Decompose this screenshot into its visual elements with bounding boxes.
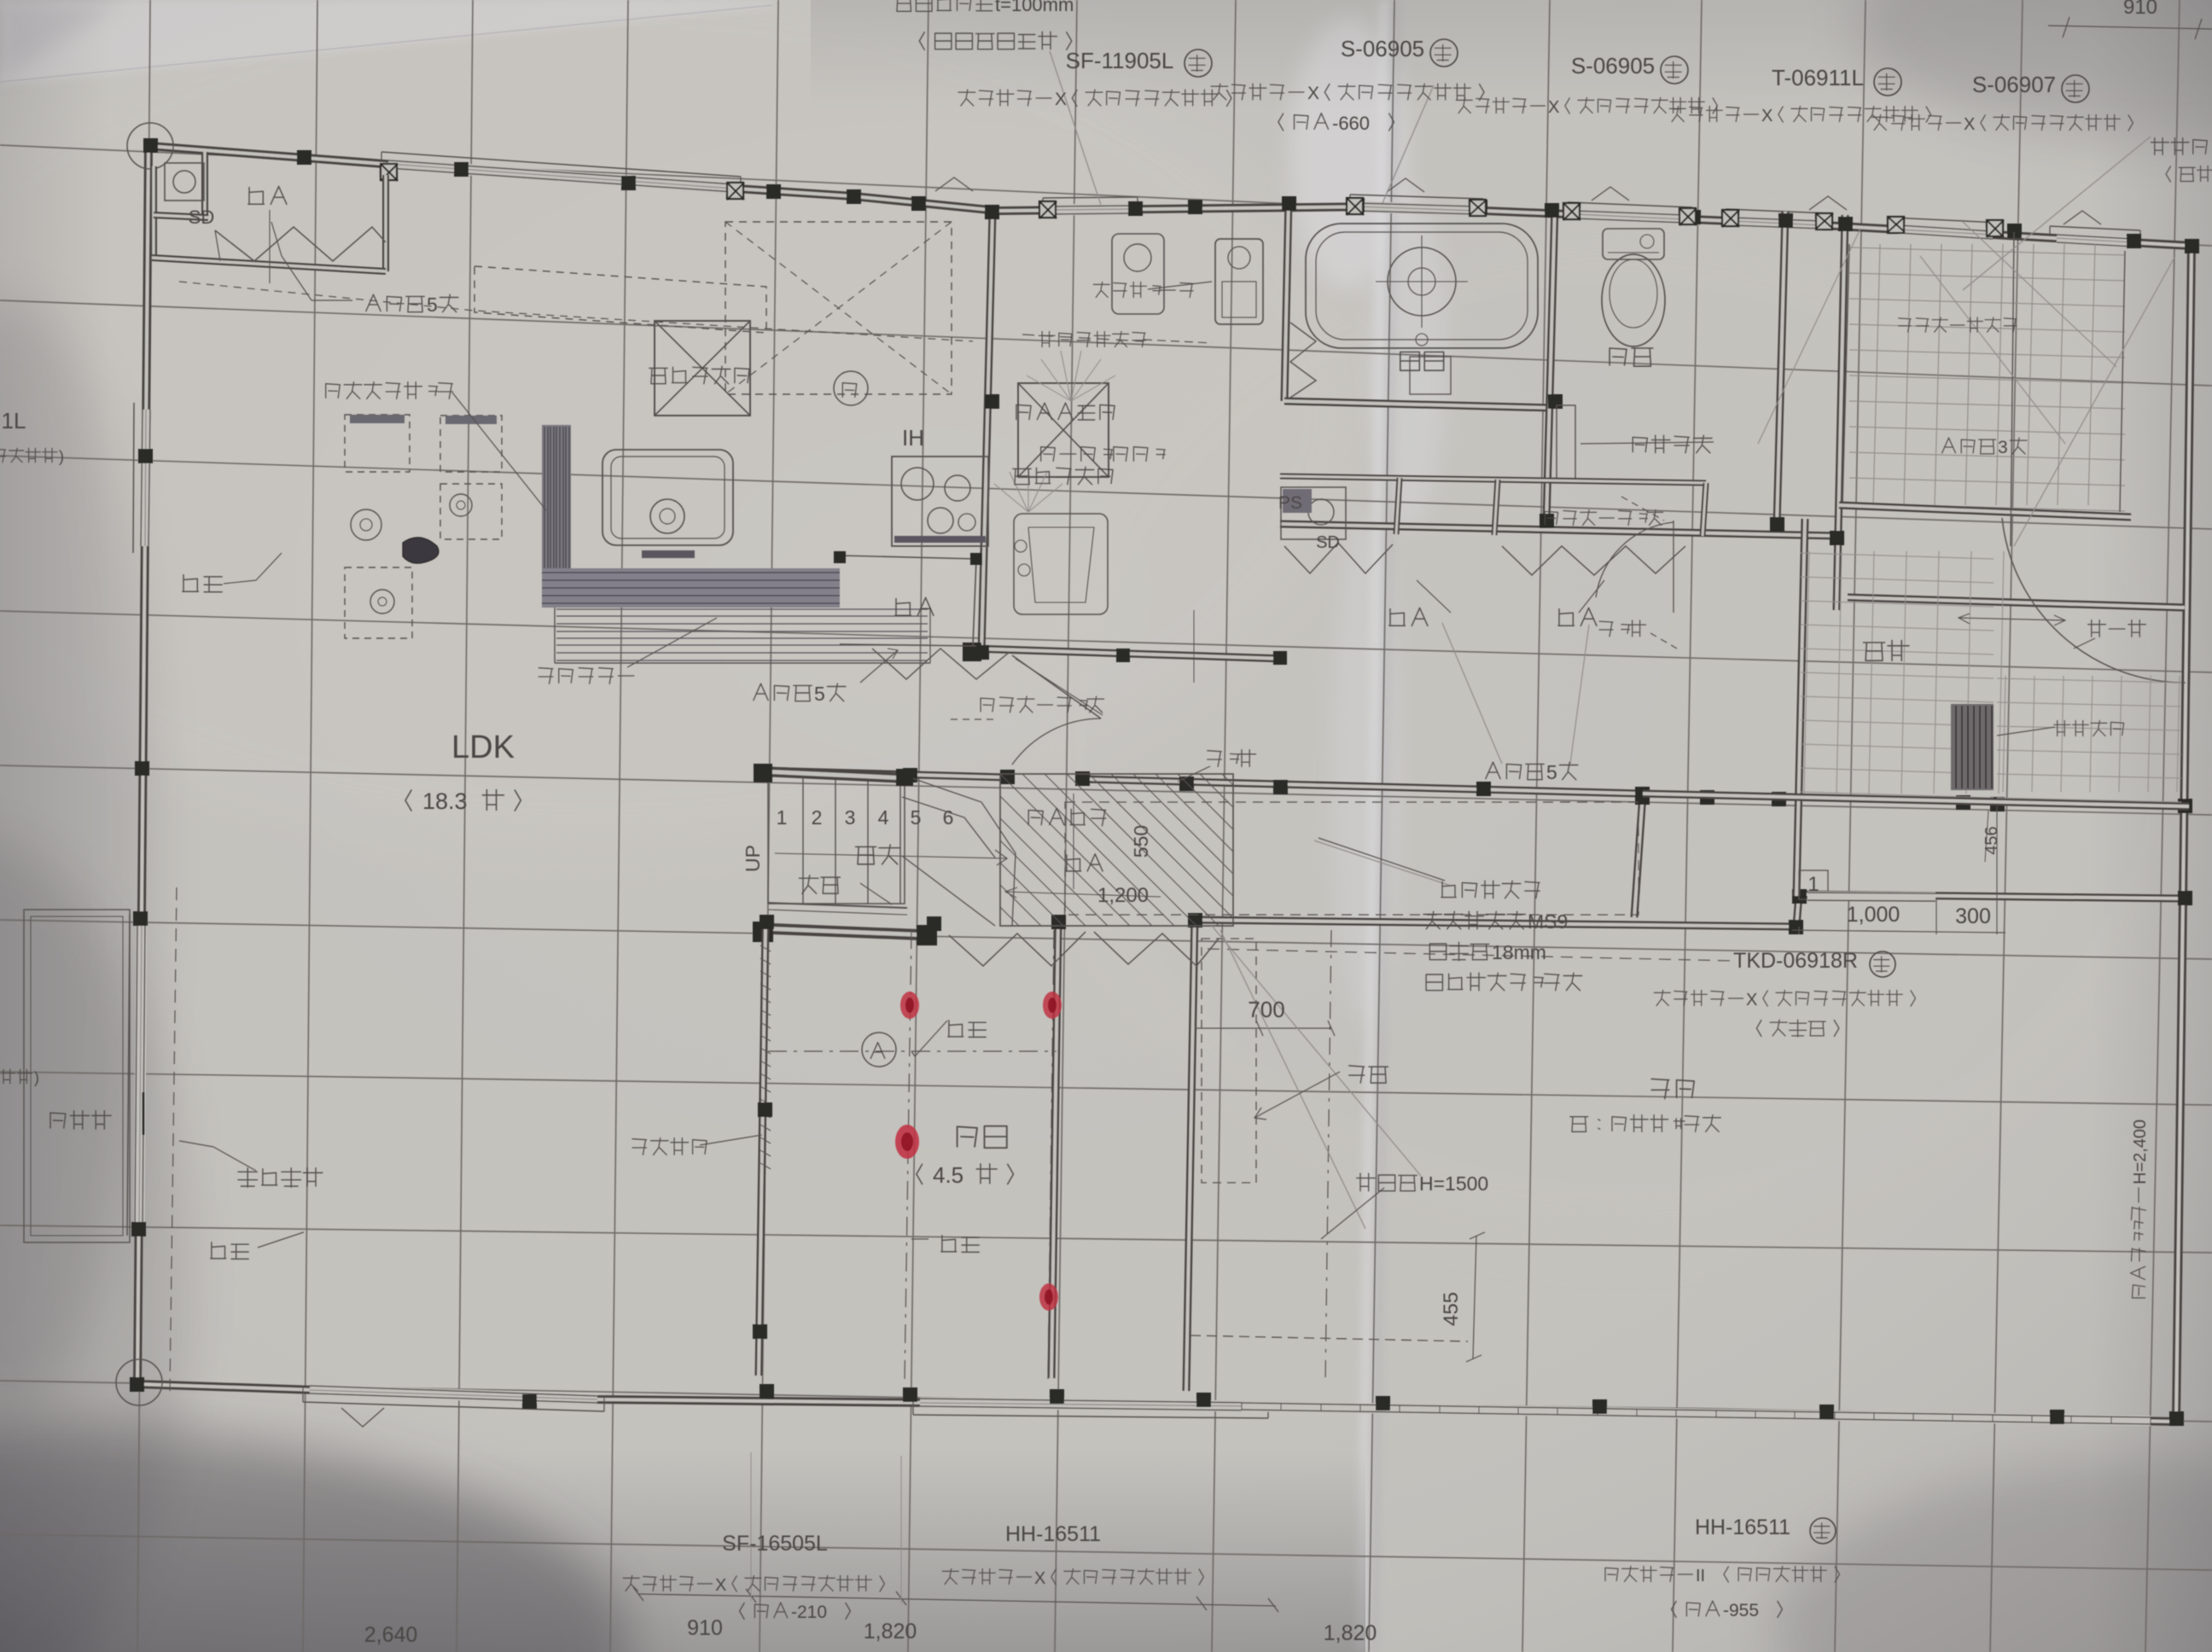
svg-text:HH-16511: HH-16511 xyxy=(1695,1515,1790,1539)
svg-text:700: 700 xyxy=(1248,997,1284,1022)
svg-text:X: X xyxy=(715,1576,726,1595)
svg-text:t=100mm: t=100mm xyxy=(995,0,1074,15)
svg-text:1,000: 1,000 xyxy=(1847,903,1901,927)
svg-text:5: 5 xyxy=(427,294,438,316)
svg-text:910: 910 xyxy=(687,1616,723,1640)
svg-text:IH: IH xyxy=(902,425,924,451)
svg-text:H=1500: H=1500 xyxy=(1419,1172,1488,1195)
svg-text:1,200: 1,200 xyxy=(1097,884,1149,907)
svg-text:SF-11905L: SF-11905L xyxy=(1066,48,1174,73)
svg-text:H=2,400: H=2,400 xyxy=(2131,1120,2150,1184)
svg-text:-955: -955 xyxy=(1723,1601,1759,1620)
svg-text:): ) xyxy=(34,1069,39,1086)
svg-text:2: 2 xyxy=(812,806,823,829)
svg-text:1,820: 1,820 xyxy=(1324,1621,1377,1645)
svg-text:X: X xyxy=(1307,84,1319,103)
svg-text:X: X xyxy=(1761,107,1773,125)
svg-text:HH-16511: HH-16511 xyxy=(1005,1522,1101,1546)
svg-text:): ) xyxy=(59,448,64,465)
svg-text:UP: UP xyxy=(742,845,764,872)
svg-text:5: 5 xyxy=(1546,761,1557,783)
svg-text:S-06907: S-06907 xyxy=(1972,72,2056,97)
svg-text:455: 455 xyxy=(1440,1292,1463,1326)
svg-text:3: 3 xyxy=(1998,438,2008,457)
svg-text:2,640: 2,640 xyxy=(364,1623,418,1647)
svg-text:T-06911L: T-06911L xyxy=(1772,65,1864,90)
svg-text:300: 300 xyxy=(1955,905,1991,928)
svg-text:LDK: LDK xyxy=(451,730,515,765)
svg-text:PS: PS xyxy=(1278,493,1302,513)
svg-text:550: 550 xyxy=(1130,825,1152,858)
svg-text:910: 910 xyxy=(2123,0,2157,19)
svg-text:18mm: 18mm xyxy=(1492,941,1546,963)
svg-text:X: X xyxy=(1964,115,1975,134)
svg-text:SD: SD xyxy=(1316,533,1340,552)
svg-text:SD: SD xyxy=(189,206,215,228)
svg-text:X: X xyxy=(1055,90,1067,109)
svg-text:X: X xyxy=(1034,1569,1045,1588)
svg-text:18.3: 18.3 xyxy=(422,788,468,814)
svg-text:S-06905: S-06905 xyxy=(1341,36,1424,61)
svg-text:6: 6 xyxy=(943,806,954,829)
svg-text:456: 456 xyxy=(1982,826,2001,854)
svg-text:3: 3 xyxy=(845,806,856,829)
svg-text:X: X xyxy=(1746,991,1757,1009)
svg-text:-210: -210 xyxy=(791,1603,827,1622)
svg-text:TKD-06918R: TKD-06918R xyxy=(1733,949,1858,973)
svg-text:4.5: 4.5 xyxy=(933,1162,963,1188)
svg-text:1: 1 xyxy=(777,806,788,829)
svg-text:-660: -660 xyxy=(1332,113,1370,134)
svg-text:X: X xyxy=(1548,98,1559,117)
svg-text:5: 5 xyxy=(911,806,922,829)
svg-text:MS9: MS9 xyxy=(1528,910,1568,933)
svg-text:4: 4 xyxy=(878,806,889,829)
svg-text:1,820: 1,820 xyxy=(864,1620,917,1643)
svg-text:5: 5 xyxy=(814,683,825,705)
svg-text:II: II xyxy=(1696,1567,1705,1585)
svg-text:SF-16505L: SF-16505L xyxy=(722,1532,828,1556)
svg-text:1L: 1L xyxy=(2,408,26,433)
svg-text:S-06905: S-06905 xyxy=(1571,53,1655,79)
